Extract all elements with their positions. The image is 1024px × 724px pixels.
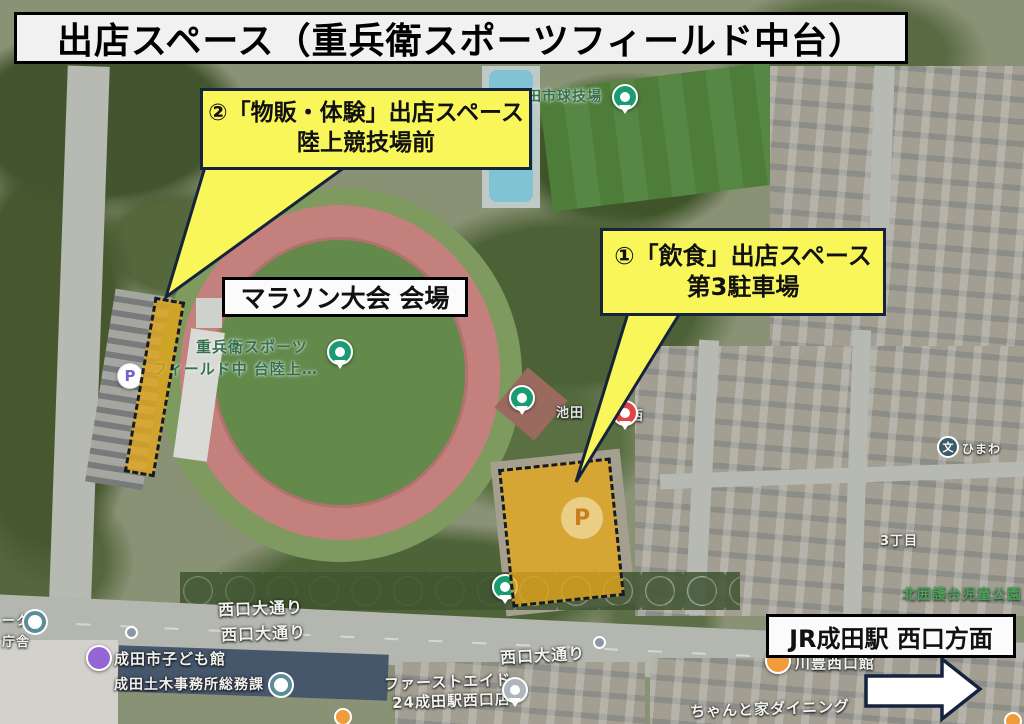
food-callout-line1: ①「飲食」出店スペース bbox=[603, 241, 883, 272]
map-label-odori-2: 西口大通り bbox=[221, 619, 307, 646]
bus-stop-icon-1[interactable] bbox=[125, 626, 138, 639]
food-callout-box: ①「飲食」出店スペース 第3駐車場 bbox=[600, 228, 886, 316]
map-label-himawari[interactable]: ひまわ bbox=[962, 440, 1001, 457]
map-label-odori-3: 西口大通り bbox=[499, 640, 585, 668]
page-title: 出店スペース（重兵衛スポーツフィールド中台） bbox=[14, 12, 908, 64]
satellite-map[interactable]: 田市球技場 重兵衛スポーツ フィールド中 台陸上… 池田 西 3丁目 北囲護台児… bbox=[0, 0, 1024, 724]
map-label-chome: 3丁目 bbox=[880, 530, 918, 549]
bus-stop-icon-2[interactable] bbox=[593, 636, 606, 649]
school-pin-icon[interactable] bbox=[612, 400, 638, 426]
school-glyph-icon[interactable]: 文 bbox=[937, 436, 959, 458]
goods-callout-line1: ②「物販・体験」出店スペース bbox=[203, 99, 529, 129]
stadium-building bbox=[196, 298, 222, 328]
pavilion-pin-icon[interactable] bbox=[509, 385, 535, 411]
parking-icon-right: P bbox=[561, 497, 603, 539]
ballpark-pin-icon[interactable] bbox=[612, 84, 638, 110]
map-label-odori-1: 西口大通り bbox=[218, 594, 304, 621]
station-direction-box: JR成田駅 西口方面 bbox=[766, 614, 1016, 658]
kodomokan-pin-icon[interactable] bbox=[86, 645, 112, 671]
map-label-doboku[interactable]: 成田土木事務所総務課 bbox=[114, 674, 264, 694]
poi-dot-orange-1 bbox=[334, 708, 352, 724]
sports-field-pin-icon[interactable] bbox=[327, 339, 353, 365]
civic-marker-icon-2[interactable] bbox=[270, 674, 292, 696]
goods-callout-line2: 陸上競技場前 bbox=[203, 129, 529, 159]
map-label-fragment-chosha: 庁舎 bbox=[2, 631, 30, 650]
map-label-sports-field-1[interactable]: 重兵衛スポーツ bbox=[196, 336, 308, 357]
map-label-firstaid-2[interactable]: 24成田駅西口店 bbox=[392, 688, 512, 713]
map-label-ikeda[interactable]: 池田 bbox=[556, 402, 584, 421]
map-label-sports-field-2[interactable]: フィールド中 台陸上… bbox=[152, 358, 318, 379]
map-label-children-park[interactable]: 北囲護台児童公園 bbox=[902, 584, 1022, 604]
marathon-venue-box: マラソン大会 会場 bbox=[222, 277, 468, 317]
zone-food-vendors bbox=[498, 457, 625, 607]
map-label-kodomokan[interactable]: 成田市子ども館 bbox=[114, 648, 226, 669]
store-pin-icon[interactable] bbox=[502, 677, 528, 703]
goods-callout-box: ②「物販・体験」出店スペース 陸上競技場前 bbox=[200, 88, 532, 170]
map-label-ballpark[interactable]: 田市球技場 bbox=[527, 86, 602, 106]
poi-dot-orange-2 bbox=[1004, 712, 1022, 724]
civic-marker-icon-1[interactable] bbox=[24, 611, 46, 633]
food-callout-line2: 第3駐車場 bbox=[603, 272, 883, 303]
